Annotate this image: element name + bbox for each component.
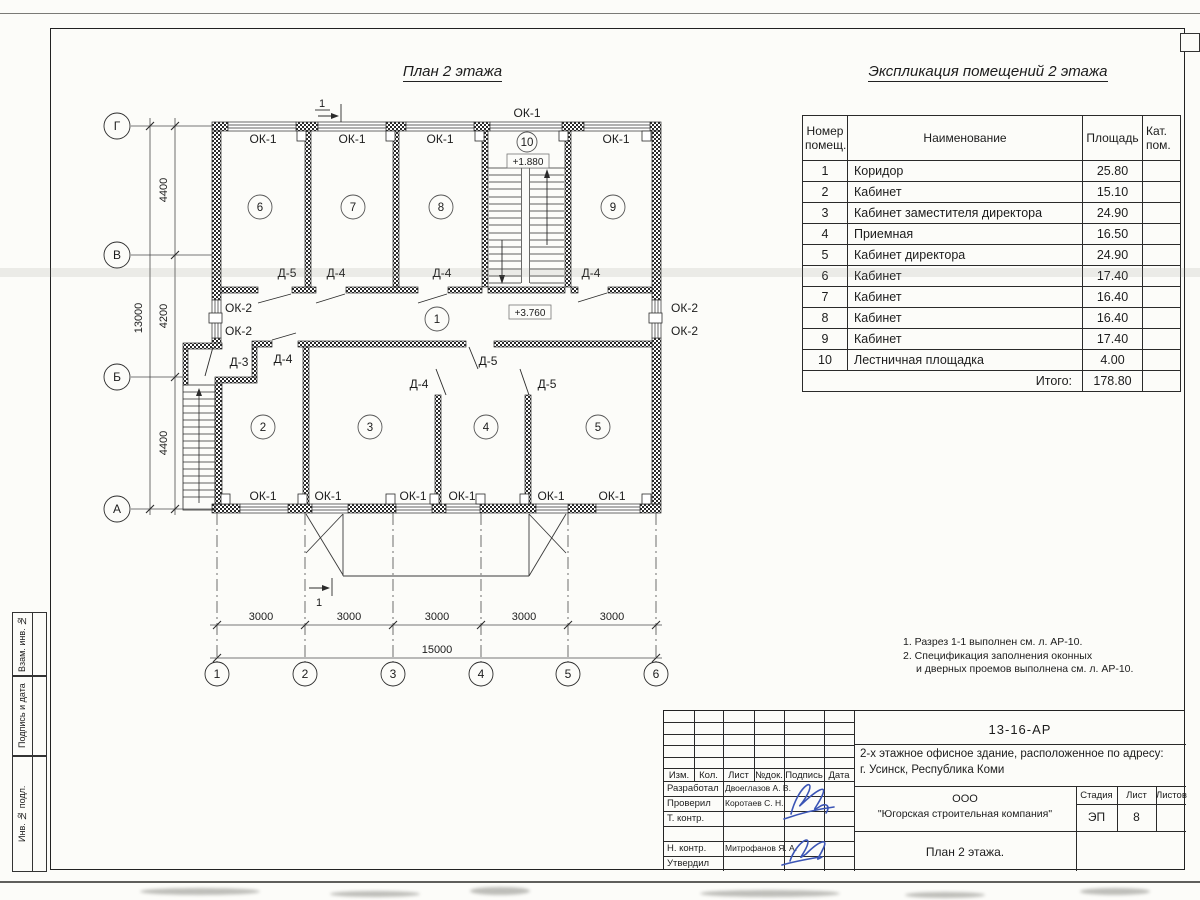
dimension-label: 3000 bbox=[425, 611, 449, 623]
room-number-cell: 7 bbox=[803, 287, 848, 308]
room-area-cell: 16.40 bbox=[1083, 287, 1143, 308]
room-name-cell: Кабинет заместителя директора bbox=[848, 203, 1083, 224]
role-label: Т. контр. bbox=[667, 813, 704, 824]
note-line: 1. Разрез 1-1 выполнен см. л. АР-10. bbox=[903, 636, 1133, 650]
window-label-ok2: ОК-2 bbox=[225, 324, 252, 338]
organization-line1: ООО bbox=[854, 793, 1076, 805]
dimension-label: 4200 bbox=[158, 304, 170, 328]
room-category-cell bbox=[1143, 287, 1181, 308]
explication-row: 10 Лестничная площадка 4.00 bbox=[803, 350, 1181, 371]
room-number-cell: 1 bbox=[803, 161, 848, 182]
room-category-cell bbox=[1143, 203, 1181, 224]
explication-title-text: Экспликация помещений 2 этажа bbox=[868, 63, 1107, 82]
axis-letter: Б bbox=[113, 370, 121, 384]
room-number: 1 bbox=[434, 314, 440, 326]
dimension-label: 3000 bbox=[249, 611, 273, 623]
dimension-label: 4400 bbox=[158, 431, 170, 455]
room-name-cell: Приемная bbox=[848, 224, 1083, 245]
explication-row: 4 Приемная 16.50 bbox=[803, 224, 1181, 245]
signature-stroke bbox=[791, 785, 828, 814]
header-category: Кат. пом. bbox=[1143, 116, 1181, 161]
explication-row: 8 Кабинет 16.40 bbox=[803, 308, 1181, 329]
axis-number: 3 bbox=[390, 667, 397, 681]
signature-stroke bbox=[782, 857, 820, 865]
total-label: Итого: bbox=[803, 371, 1083, 392]
elevation-value: +3.760 bbox=[515, 308, 546, 319]
explication-row: 2 Кабинет 15.10 bbox=[803, 182, 1181, 203]
dimension-label: 13000 bbox=[133, 303, 145, 334]
room-number: 4 bbox=[483, 422, 490, 434]
notes: 1. Разрез 1-1 выполнен см. л. АР-10. 2. … bbox=[903, 636, 1133, 677]
section-marks bbox=[309, 104, 341, 596]
role-name: Коротаев С. Н. bbox=[725, 798, 783, 808]
project-description-line1: 2-х этажное офисное здание, расположенно… bbox=[860, 748, 1164, 760]
dimension-lines bbox=[146, 118, 662, 662]
sheets-label: Листов bbox=[1156, 790, 1186, 801]
room-area-cell: 17.40 bbox=[1083, 266, 1143, 287]
axis-letter: В bbox=[113, 248, 121, 262]
signatures bbox=[776, 769, 871, 871]
room-number: 10 bbox=[521, 137, 534, 149]
explication-header-row: Номер помещ. Наименование Площадь Кат. п… bbox=[803, 116, 1181, 161]
stage-value: ЭП bbox=[1076, 810, 1117, 824]
col-header-kol: Кол. bbox=[694, 770, 723, 781]
room-name-cell: Лестничная площадка bbox=[848, 350, 1083, 371]
plan-title: План 2 этажа bbox=[385, 63, 520, 80]
window-label-ok2: ОК-2 bbox=[671, 324, 698, 338]
room-number: 2 bbox=[260, 422, 266, 434]
room-number-cell: 10 bbox=[803, 350, 848, 371]
door-label-d4: Д-4 bbox=[327, 266, 346, 280]
room-name-cell: Кабинет bbox=[848, 308, 1083, 329]
title-block: Изм. Кол. Лист №док. Подпись Дата Разраб… bbox=[663, 710, 1185, 870]
stage-label: Стадия bbox=[1076, 790, 1117, 801]
room-name-cell: Кабинет bbox=[848, 182, 1083, 203]
section-mark-number: 1 bbox=[319, 98, 325, 110]
room-number: 9 bbox=[610, 202, 616, 214]
explication-table: Номер помещ. Наименование Площадь Кат. п… bbox=[802, 115, 1181, 392]
axis-number: 4 bbox=[478, 667, 485, 681]
room-number: 3 bbox=[367, 422, 373, 434]
room-area-cell: 17.40 bbox=[1083, 329, 1143, 350]
porch-canopy bbox=[306, 514, 566, 576]
organization-line2: "Югорская строительная компания" bbox=[854, 808, 1076, 820]
col-header-izm: Изм. bbox=[664, 770, 694, 781]
door-label-d4: Д-4 bbox=[410, 377, 429, 391]
section-mark-number: 1 bbox=[316, 597, 322, 609]
room-category-cell bbox=[1143, 182, 1181, 203]
room-name-cell: Коридор bbox=[848, 161, 1083, 182]
dimension-label: 3000 bbox=[512, 611, 536, 623]
room-number: 6 bbox=[257, 202, 263, 214]
window-label-ok1: ОК-1 bbox=[250, 489, 277, 503]
header-room-number: Номер помещ. bbox=[803, 116, 848, 161]
explication-row: 1 Коридор 25.80 bbox=[803, 161, 1181, 182]
room-number-cell: 6 bbox=[803, 266, 848, 287]
window-label-ok1: ОК-1 bbox=[315, 489, 342, 503]
room-number-cell: 4 bbox=[803, 224, 848, 245]
room-name-cell: Кабинет bbox=[848, 329, 1083, 350]
door-label-d5: Д-5 bbox=[278, 266, 297, 280]
explication-row: 6 Кабинет 17.40 bbox=[803, 266, 1181, 287]
room-name-cell: Кабинет bbox=[848, 287, 1083, 308]
room-number: 5 bbox=[595, 422, 601, 434]
room-area-cell: 25.80 bbox=[1083, 161, 1143, 182]
room-area-cell: 24.90 bbox=[1083, 203, 1143, 224]
role-label: Разработал bbox=[667, 783, 719, 794]
room-number-cell: 3 bbox=[803, 203, 848, 224]
dimension-label: 4400 bbox=[158, 178, 170, 202]
room-category-cell bbox=[1143, 329, 1181, 350]
axis-letter: Г bbox=[114, 119, 121, 133]
room-category-cell bbox=[1143, 350, 1181, 371]
project-description-line2: г. Усинск, Республика Коми bbox=[860, 764, 1004, 776]
room-area-cell: 16.40 bbox=[1083, 308, 1143, 329]
door-label-d4: Д-4 bbox=[582, 266, 601, 280]
axis-circles bbox=[104, 113, 668, 686]
axis-letter: А bbox=[113, 502, 121, 516]
window-label-ok1: ОК-1 bbox=[400, 489, 427, 503]
window-label-ok1: ОК-1 bbox=[250, 132, 277, 146]
explication-total-row: Итого: 178.80 bbox=[803, 371, 1181, 392]
room-category-cell bbox=[1143, 245, 1181, 266]
axis-number: 1 bbox=[214, 667, 221, 681]
explication-row: 7 Кабинет 16.40 bbox=[803, 287, 1181, 308]
total-category-cell bbox=[1143, 371, 1181, 392]
room-category-cell bbox=[1143, 308, 1181, 329]
window-label-ok1: ОК-1 bbox=[603, 132, 630, 146]
window-label-ok1: ОК-1 bbox=[538, 489, 565, 503]
room-number: 7 bbox=[350, 202, 356, 214]
stairwell bbox=[488, 168, 565, 283]
note-line: и дверных проемов выполнена см. л. АР-10… bbox=[903, 663, 1133, 677]
role-label: Н. контр. bbox=[667, 843, 706, 854]
room-area-cell: 15.10 bbox=[1083, 182, 1143, 203]
window-label-ok1: ОК-1 bbox=[514, 106, 541, 120]
door-label-d5: Д-5 bbox=[479, 354, 498, 368]
dimension-label: 3000 bbox=[600, 611, 624, 623]
window-label-ok1: ОК-1 bbox=[339, 132, 366, 146]
room-area-cell: 24.90 bbox=[1083, 245, 1143, 266]
drawing-sheet: Взам. инв. № Подпись и дата Инв. № подл. bbox=[0, 0, 1200, 900]
header-area: Площадь bbox=[1083, 116, 1143, 161]
dimension-label: 15000 bbox=[422, 644, 453, 656]
explication-title: Экспликация помещений 2 этажа bbox=[853, 63, 1123, 80]
role-label: Проверил bbox=[667, 798, 711, 809]
stair-direction-arrows bbox=[499, 169, 550, 284]
window-label-ok2: ОК-2 bbox=[225, 301, 252, 315]
explication-row: 5 Кабинет директора 24.90 bbox=[803, 245, 1181, 266]
door-label-d4: Д-4 bbox=[274, 352, 293, 366]
role-label: Утвердил bbox=[667, 858, 709, 869]
explication-row: 3 Кабинет заместителя директора 24.90 bbox=[803, 203, 1181, 224]
room-number-cell: 5 bbox=[803, 245, 848, 266]
room-number: 8 bbox=[438, 202, 444, 214]
axis-number: 2 bbox=[302, 667, 309, 681]
axis-number: 5 bbox=[565, 667, 572, 681]
sheet-label: Лист bbox=[1117, 790, 1156, 801]
room-name-cell: Кабинет директора bbox=[848, 245, 1083, 266]
room-number-cell: 9 bbox=[803, 329, 848, 350]
window-label-ok2: ОК-2 bbox=[671, 301, 698, 315]
total-value: 178.80 bbox=[1083, 371, 1143, 392]
elevation-marks: +1.880 +3.760 bbox=[507, 154, 551, 319]
room-category-cell bbox=[1143, 161, 1181, 182]
door-label-d3: Д-3 bbox=[230, 355, 249, 369]
window-label-ok1: ОК-1 bbox=[599, 489, 626, 503]
room-name-cell: Кабинет bbox=[848, 266, 1083, 287]
room-area-cell: 4.00 bbox=[1083, 350, 1143, 371]
room-number-cell: 8 bbox=[803, 308, 848, 329]
sheet-number-value: 8 bbox=[1117, 810, 1156, 824]
explication-row: 9 Кабинет 17.40 bbox=[803, 329, 1181, 350]
room-area-cell: 16.50 bbox=[1083, 224, 1143, 245]
room-number-cell: 2 bbox=[803, 182, 848, 203]
dimension-label: 3000 bbox=[337, 611, 361, 623]
door-label-d4: Д-4 bbox=[433, 266, 452, 280]
document-number: 13-16-АР bbox=[854, 722, 1186, 737]
col-header-list: Лист bbox=[723, 770, 754, 781]
door-label-d5: Д-5 bbox=[538, 377, 557, 391]
note-line: 2. Спецификация заполнения оконных bbox=[903, 650, 1133, 664]
axis-number: 6 bbox=[653, 667, 660, 681]
window-label-ok1: ОК-1 bbox=[449, 489, 476, 503]
exterior-walls bbox=[183, 122, 661, 513]
room-category-cell bbox=[1143, 266, 1181, 287]
drawing-title: План 2 этажа. bbox=[854, 845, 1076, 859]
section-mark-arrows bbox=[322, 113, 339, 591]
plan-title-text: План 2 этажа bbox=[403, 63, 502, 82]
external-stair bbox=[183, 385, 215, 510]
header-name: Наименование bbox=[848, 116, 1083, 161]
window-label-ok1: ОК-1 bbox=[427, 132, 454, 146]
elevation-value: +1.880 bbox=[513, 157, 544, 168]
room-category-cell bbox=[1143, 224, 1181, 245]
